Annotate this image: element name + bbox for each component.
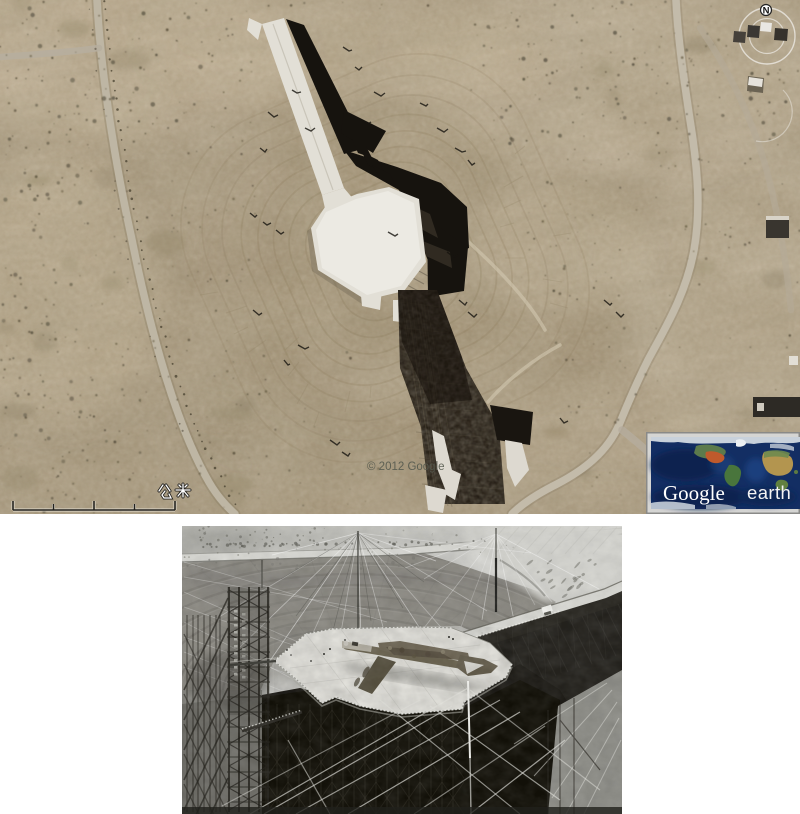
svg-text:earth: earth bbox=[747, 482, 791, 503]
svg-text:© 2012 Google: © 2012 Google bbox=[367, 461, 445, 473]
svg-text:Google: Google bbox=[663, 481, 725, 505]
svg-text:N: N bbox=[763, 6, 770, 17]
